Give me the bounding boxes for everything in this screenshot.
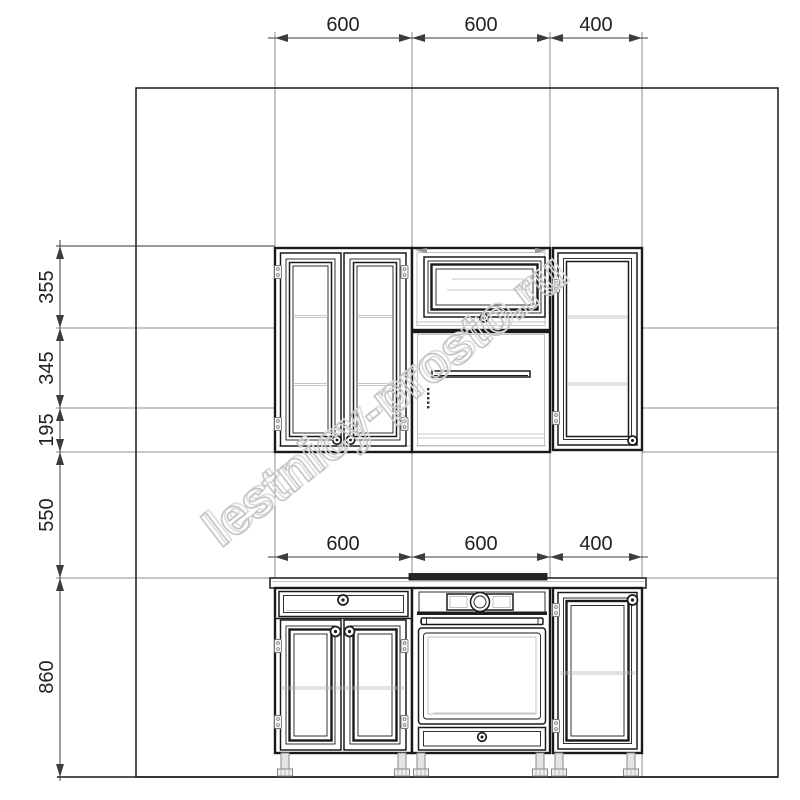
- leg: [533, 753, 548, 776]
- dim-label-left-4: 550: [36, 498, 58, 531]
- dim-label-left-5: 860: [36, 660, 58, 693]
- middle-dimension-chain: 600 600 400: [268, 533, 648, 561]
- top-dimension-chain: 600 600 400: [268, 14, 648, 42]
- door-knob: [331, 627, 341, 637]
- dim-label-left-1: 355: [36, 270, 58, 303]
- leg: [395, 753, 410, 776]
- dim-label-middle-1: 600: [326, 533, 359, 555]
- oven-knob: [471, 593, 490, 612]
- hinge-icon: [275, 418, 282, 431]
- oven: [412, 588, 550, 753]
- door-knob: [628, 436, 637, 445]
- door-knob: [628, 595, 638, 605]
- door-knob: [345, 627, 355, 637]
- leg: [414, 753, 429, 776]
- dim-label-top-2: 600: [464, 14, 497, 36]
- dim-label-middle-3: 400: [579, 533, 612, 555]
- hinge-icon: [553, 720, 560, 733]
- leg: [624, 753, 639, 776]
- hinge-icon: [275, 266, 282, 279]
- hinge-icon: [401, 266, 408, 279]
- dim-label-left-3: 195: [36, 413, 58, 446]
- hob-strip: [409, 574, 547, 581]
- base-cabinet-right: [553, 588, 643, 753]
- hinge-icon: [401, 716, 408, 729]
- drawer-knob: [338, 595, 348, 605]
- oven-handle: [421, 618, 543, 625]
- dim-label-middle-2: 600: [464, 533, 497, 555]
- leg: [278, 753, 293, 776]
- hinge-icon: [275, 640, 282, 653]
- dim-label-top-3: 400: [579, 14, 612, 36]
- legs: [278, 753, 639, 776]
- hinge-icon: [275, 716, 282, 729]
- hinge-icon: [401, 640, 408, 653]
- base-cabinet-left: [275, 588, 413, 753]
- hinge-icon: [553, 604, 560, 617]
- elevation-svg: 600 600 400 600 600 400 355 345 195 550 …: [0, 0, 800, 800]
- kitchen-elevation-drawing: 600 600 400 600 600 400 355 345 195 550 …: [0, 0, 800, 800]
- left-dimension-chain: 355 345 195 550 860: [36, 240, 64, 781]
- leg: [552, 753, 567, 776]
- dim-label-top-1: 600: [326, 14, 359, 36]
- dim-label-left-2: 345: [36, 351, 58, 384]
- hinge-icon: [553, 412, 560, 425]
- drawer-knob: [478, 733, 487, 742]
